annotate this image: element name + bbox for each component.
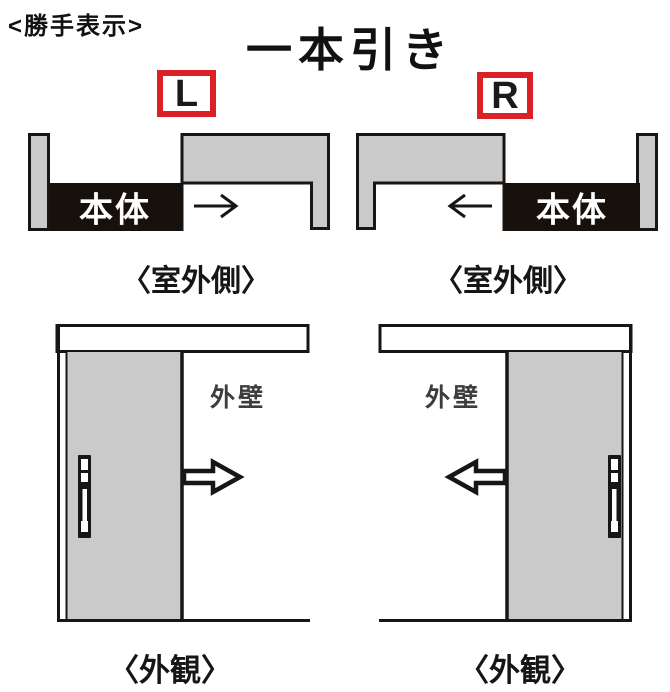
- diagram-canvas: <勝手表示> 一本引き L R 本体: [0, 0, 670, 692]
- exterior-wall-label: 外壁: [425, 378, 481, 414]
- handedness-note: <勝手表示>: [8, 6, 144, 41]
- block-arrow-right-icon: [184, 462, 240, 492]
- caption-outdoor-side-left: 〈室外側〉: [121, 256, 271, 300]
- handedness-letter-right: R: [491, 77, 518, 115]
- door-rail: [57, 326, 308, 352]
- plan-view-left: 本体: [28, 133, 330, 233]
- arrow-left-icon: [450, 195, 492, 217]
- exterior-wall-label: 外壁: [210, 378, 266, 414]
- wall-pocket-shape: [358, 135, 505, 229]
- handedness-badge-right: R: [477, 72, 533, 119]
- page-title: 一本引き: [246, 14, 454, 80]
- elevation-view-left: 外壁: [55, 323, 311, 623]
- door-handle-icon: [78, 455, 91, 538]
- door-leaf: [507, 352, 622, 620]
- plan-view-right: 本体: [356, 133, 658, 233]
- block-arrow-left-icon: [449, 462, 505, 492]
- plan-left-drawing: [28, 133, 330, 233]
- arrow-right-icon: [194, 195, 236, 217]
- door-handle-icon: [608, 455, 621, 538]
- wall-pocket-shape: [182, 135, 329, 229]
- elevation-right-drawing: [378, 323, 634, 623]
- handedness-badge-left: L: [157, 70, 216, 117]
- wall-end-strip: [30, 135, 49, 230]
- door-rail: [380, 326, 631, 352]
- caption-outdoor-side-right: 〈室外側〉: [433, 256, 583, 300]
- door-body-label: 本体: [79, 183, 151, 232]
- wall-end-strip: [638, 135, 657, 230]
- plan-right-drawing: [356, 133, 658, 233]
- caption-exterior-view-left: 〈外観〉: [108, 645, 232, 690]
- handedness-letter-left: L: [175, 75, 198, 113]
- elevation-view-right: 外壁: [378, 323, 634, 623]
- caption-exterior-view-right: 〈外観〉: [458, 645, 582, 690]
- elevation-left-drawing: [55, 323, 311, 623]
- door-body-label: 本体: [536, 183, 608, 232]
